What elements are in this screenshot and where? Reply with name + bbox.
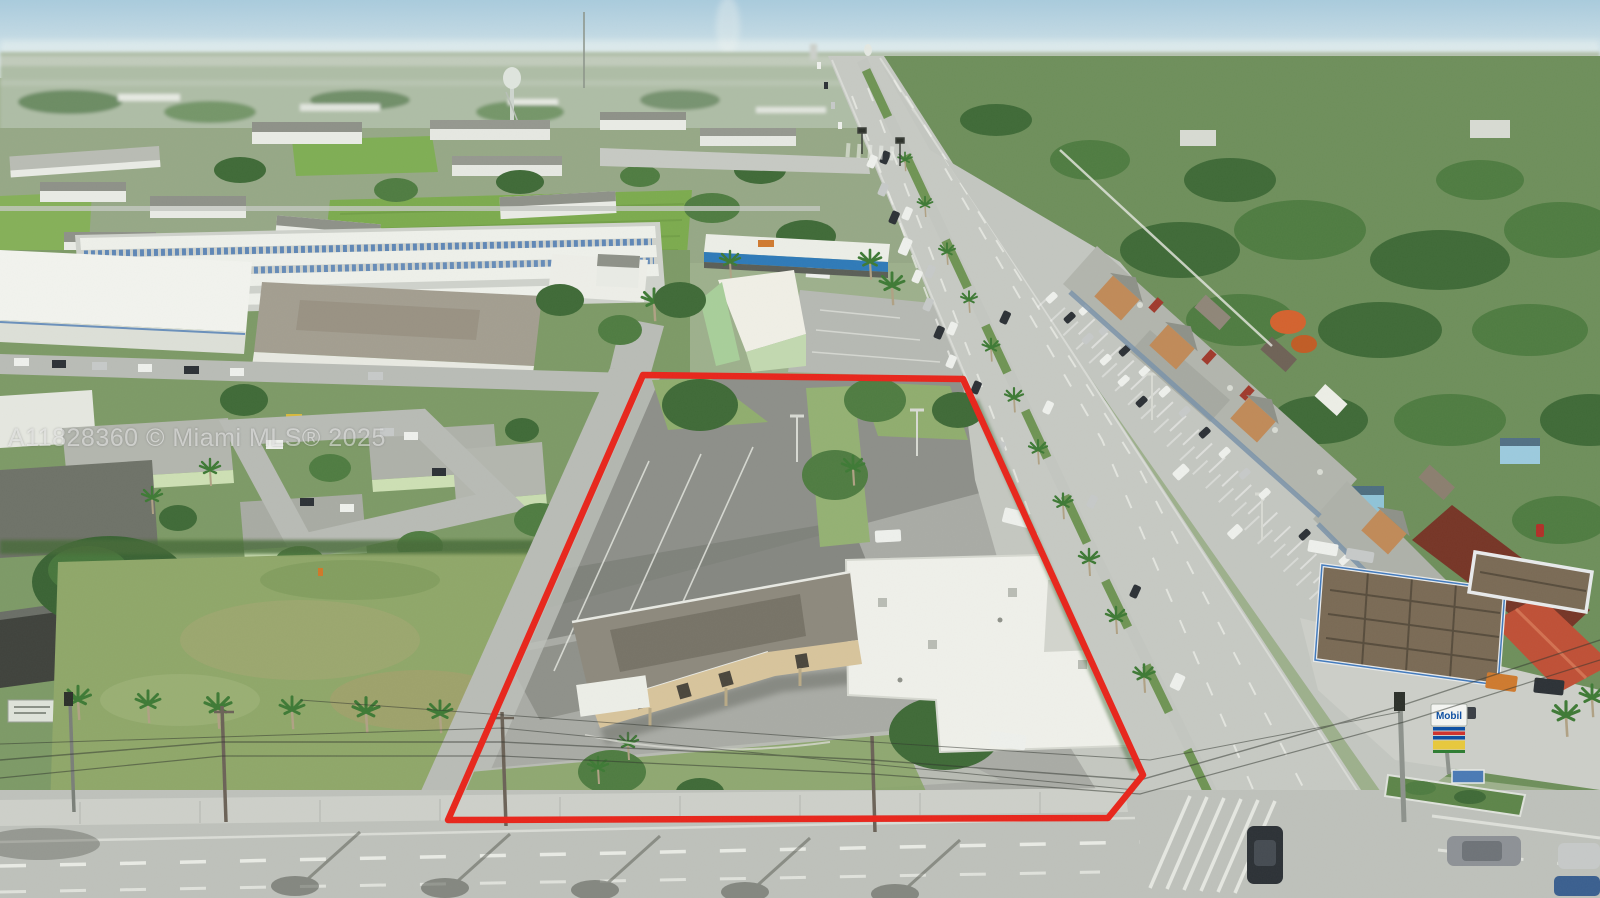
aerial-photo: Mobil [0,0,1600,898]
photo-grain [0,0,1600,898]
aerial-scene: Mobil [0,0,1600,898]
